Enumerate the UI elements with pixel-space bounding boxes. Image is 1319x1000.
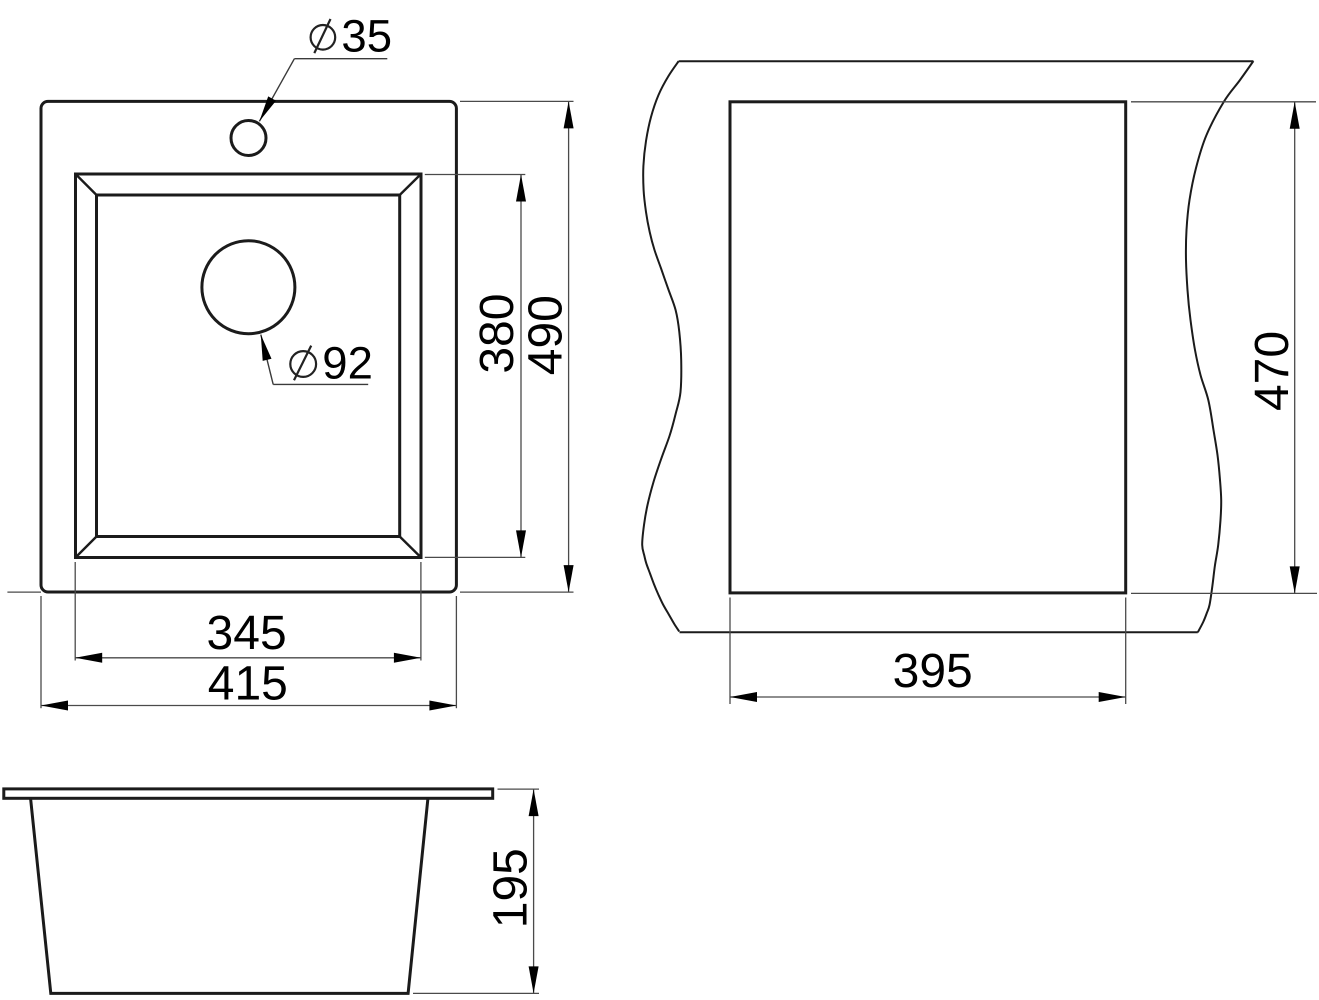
svg-text:395: 395: [893, 645, 973, 698]
svg-text:415: 415: [208, 658, 288, 711]
svg-text:92: 92: [322, 337, 373, 388]
svg-text:35: 35: [341, 10, 392, 61]
svg-text:345: 345: [207, 607, 287, 660]
svg-text:380: 380: [471, 294, 524, 374]
svg-text:490: 490: [520, 295, 573, 375]
svg-text:470: 470: [1246, 331, 1299, 411]
svg-text:195: 195: [485, 848, 538, 928]
